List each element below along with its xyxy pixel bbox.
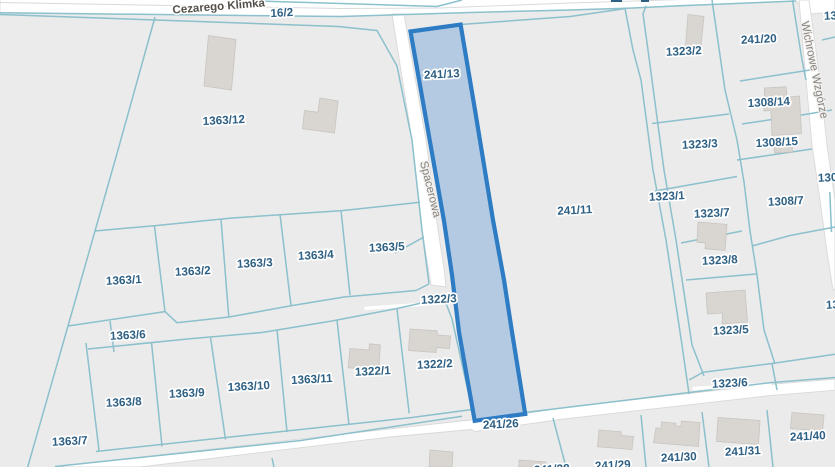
svg-text:1368/2: 1368/2 — [826, 297, 835, 312]
svg-text:1363/1: 1363/1 — [106, 273, 143, 288]
svg-text:1323/6: 1323/6 — [712, 376, 749, 391]
svg-text:1322/3: 1322/3 — [421, 292, 458, 307]
svg-text:1363/11: 1363/11 — [291, 372, 334, 387]
svg-text:1322/2: 1322/2 — [417, 357, 454, 372]
svg-text:1363/5: 1363/5 — [369, 240, 406, 255]
svg-text:1323/2: 1323/2 — [666, 44, 703, 59]
svg-text:241/29: 241/29 — [595, 458, 632, 467]
svg-text:1363/10: 1363/10 — [227, 379, 270, 394]
svg-text:241/31: 241/31 — [725, 444, 762, 459]
svg-text:1323/5: 1323/5 — [713, 323, 750, 338]
svg-text:241/13: 241/13 — [424, 67, 461, 82]
svg-text:1308/15: 1308/15 — [755, 135, 798, 150]
svg-text:1323/1: 1323/1 — [649, 189, 686, 204]
svg-text:1363/3: 1363/3 — [237, 256, 274, 271]
svg-text:241/40: 241/40 — [790, 429, 827, 444]
svg-text:1363/12: 1363/12 — [202, 113, 245, 128]
svg-text:1322/1: 1322/1 — [355, 364, 392, 379]
svg-text:1323/4: 1323/4 — [824, 8, 835, 23]
svg-text:1308/7: 1308/7 — [768, 194, 804, 209]
svg-text:1363/8: 1363/8 — [106, 395, 143, 410]
svg-text:1363/6: 1363/6 — [110, 328, 147, 343]
svg-text:1323/7: 1323/7 — [694, 206, 730, 221]
svg-text:1323/3: 1323/3 — [682, 137, 719, 152]
svg-text:241/26: 241/26 — [483, 417, 520, 432]
svg-text:16/2: 16/2 — [270, 6, 294, 20]
svg-text:1363/2: 1363/2 — [175, 264, 212, 279]
svg-text:1363/9: 1363/9 — [169, 386, 206, 401]
svg-text:241/20: 241/20 — [741, 32, 778, 47]
svg-text:1363/4: 1363/4 — [298, 248, 335, 263]
svg-text:241/11: 241/11 — [557, 203, 593, 218]
svg-text:241/30: 241/30 — [661, 450, 698, 465]
svg-text:1308/5: 1308/5 — [818, 170, 835, 185]
svg-text:1308/14: 1308/14 — [747, 95, 790, 110]
svg-text:1363/7: 1363/7 — [52, 434, 88, 449]
svg-text:1323/8: 1323/8 — [702, 253, 739, 268]
svg-text:241/28: 241/28 — [534, 462, 571, 467]
